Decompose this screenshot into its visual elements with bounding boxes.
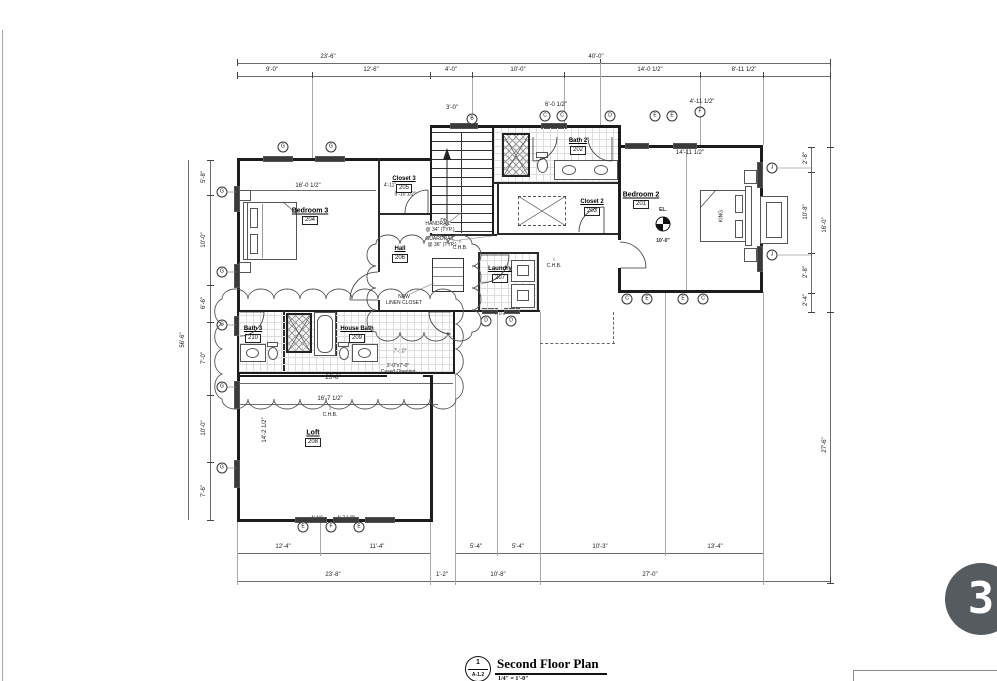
plan-annotations-svg xyxy=(0,0,997,681)
plan-scale: 1/4" = 1'-0" xyxy=(498,676,528,681)
note-leader xyxy=(410,283,434,294)
door-swing xyxy=(350,272,378,300)
door-swing xyxy=(579,207,604,233)
door-swing xyxy=(620,242,646,268)
revision-cloud xyxy=(367,235,481,341)
door-swing xyxy=(481,255,509,283)
floor-plan-page: 23'-6" 40'-0" 9'-0" 12'-6" 4'-0" 10'-0" … xyxy=(0,0,997,681)
revision-cloud xyxy=(215,289,464,409)
door-swing xyxy=(533,137,557,161)
plan-title: Second Floor Plan xyxy=(497,656,599,672)
door-swing xyxy=(588,137,612,161)
door-swing xyxy=(240,312,264,336)
stair-arrowhead xyxy=(443,148,451,160)
detail-reference-bubble: 1 A-1.2 xyxy=(465,656,491,681)
door-swing xyxy=(429,312,451,334)
bed-fold-line xyxy=(283,202,297,214)
note-leader xyxy=(452,236,492,241)
door-swing xyxy=(405,190,428,213)
note-leader xyxy=(443,212,462,227)
sheet-reference: A-1.2 xyxy=(466,672,490,678)
bed-fold-line xyxy=(700,190,716,208)
detail-number: 1 xyxy=(466,659,490,666)
plan-title-underline xyxy=(495,673,607,675)
detail-bubble-divider xyxy=(468,669,488,670)
